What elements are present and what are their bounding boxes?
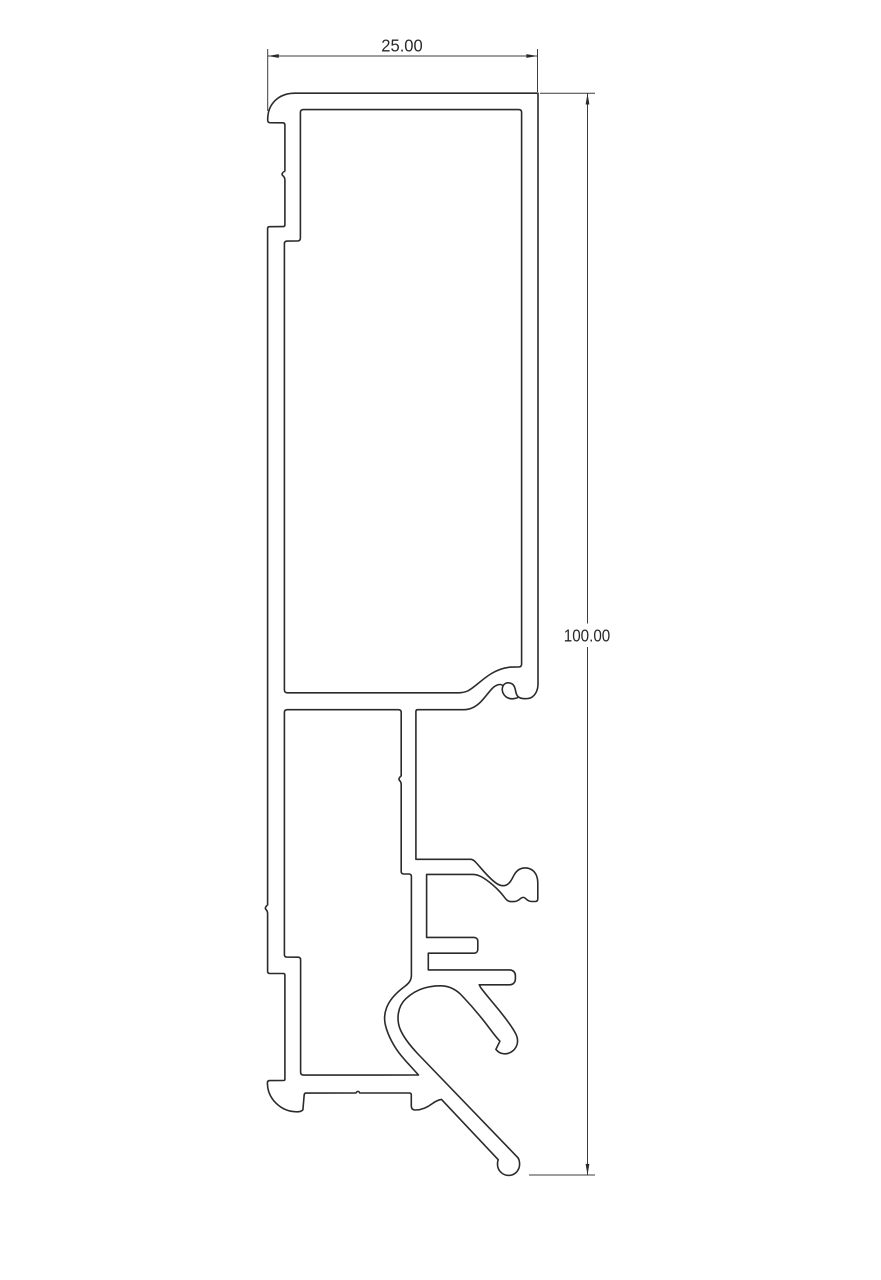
svg-text:100.00: 100.00: [564, 626, 611, 646]
svg-text:25.00: 25.00: [381, 36, 423, 56]
